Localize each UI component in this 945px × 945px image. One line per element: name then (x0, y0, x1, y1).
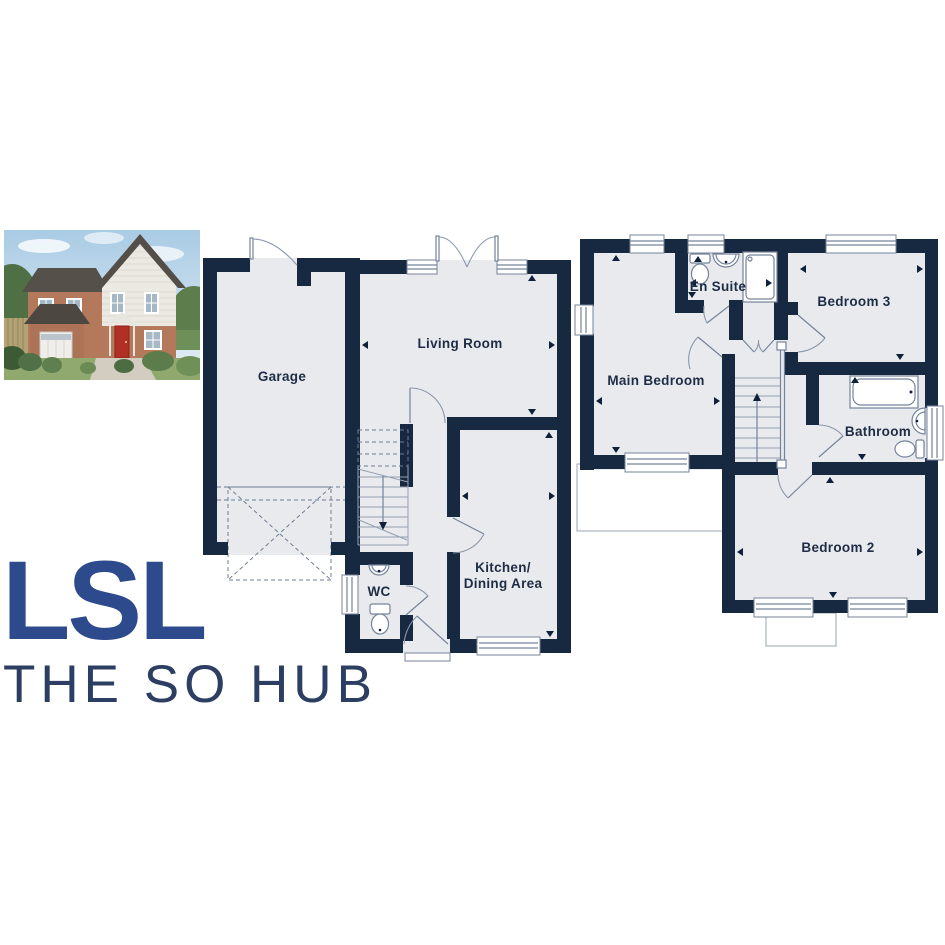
front-door-threshold (405, 653, 450, 661)
room-label-bedroom-2: Bedroom 2 (801, 540, 874, 555)
ground-floor-plan: Garage Living Room WC Kitchen/ Dining Ar… (202, 224, 574, 668)
roof-outline-left (577, 464, 725, 531)
brand-logo: LSL (2, 545, 205, 657)
page: Garage Living Room WC Kitchen/ Dining Ar… (0, 0, 945, 945)
french-door-left-icon (436, 236, 439, 261)
shower-icon (743, 252, 777, 302)
french-door-right-icon (495, 236, 498, 261)
roof-outline-bottom (766, 613, 836, 646)
photo-garage (24, 304, 90, 362)
room-label-garage: Garage (258, 369, 307, 384)
bath-icon (850, 376, 918, 408)
first-floor-plan: En Suite Bedroom 3 Main Bedroom Bathroom… (574, 226, 945, 658)
garage-side-door-icon (250, 238, 253, 259)
bathroom-toilet-icon (895, 440, 924, 458)
room-label-wc: WC (367, 584, 390, 599)
room-label-main-bedroom: Main Bedroom (607, 373, 704, 388)
room-label-bathroom: Bathroom (845, 424, 911, 439)
wc-toilet-icon (370, 604, 390, 634)
brand-tagline: THE SO HUB (3, 658, 377, 711)
room-label-bedroom-3: Bedroom 3 (817, 294, 890, 309)
room-label-kitchen-line1: Kitchen/ (475, 560, 531, 575)
room-label-en-suite: En Suite (690, 279, 747, 294)
room-label-kitchen-line2: Dining Area (464, 576, 543, 591)
room-label-living-room: Living Room (417, 336, 502, 351)
house-photo (4, 230, 200, 380)
